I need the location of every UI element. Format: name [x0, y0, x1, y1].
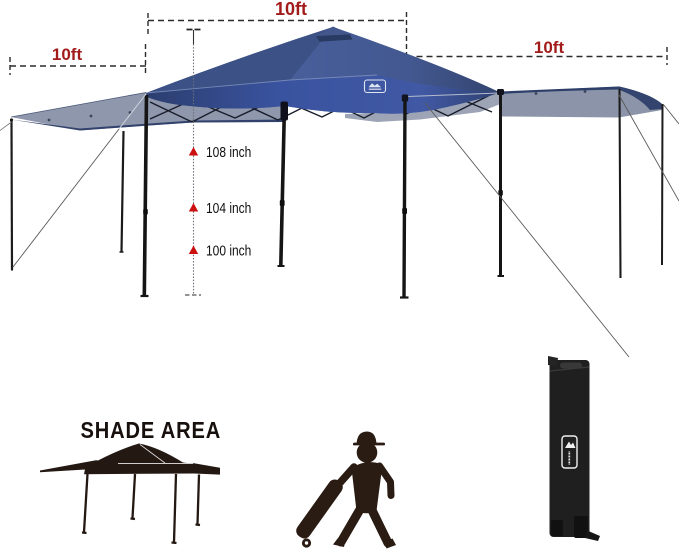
- svg-text:10ft: 10ft: [52, 45, 83, 64]
- svg-text:100 inch: 100 inch: [206, 242, 251, 259]
- svg-text:108 inch: 108 inch: [206, 144, 251, 161]
- svg-text:104 inch: 104 inch: [206, 200, 251, 217]
- svg-text:10ft: 10ft: [275, 0, 307, 19]
- svg-text:10ft: 10ft: [534, 38, 565, 57]
- svg-text:SHADE AREA: SHADE AREA: [81, 417, 222, 444]
